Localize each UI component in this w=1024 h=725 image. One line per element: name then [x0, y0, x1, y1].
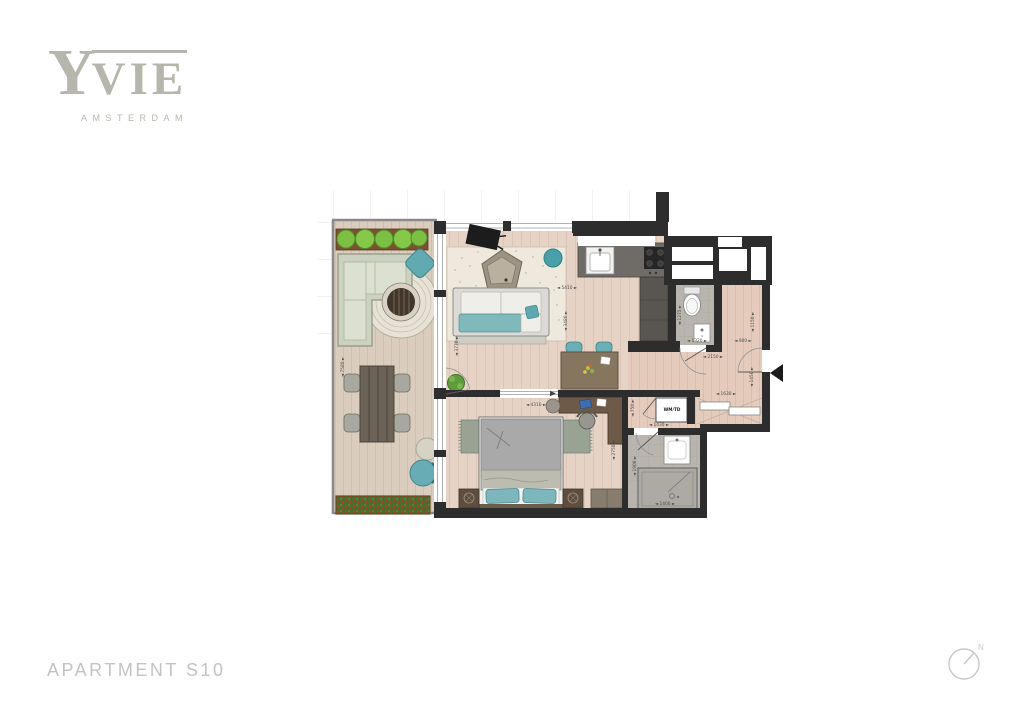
sliding-door-bedroom	[500, 389, 558, 398]
outdoor-chair	[344, 414, 360, 432]
coffee-table	[382, 283, 420, 321]
dimension-label: ◄ 750 ►	[630, 399, 636, 417]
dining-chair-teal	[566, 342, 582, 353]
side-table-teal	[544, 249, 562, 267]
dimension-label: ◄ 3480 ►	[563, 310, 569, 331]
stool	[546, 399, 560, 413]
dimension-label: ◄ 7580 ►	[340, 356, 346, 377]
planter-bushes	[336, 229, 428, 250]
bed-blanket	[481, 470, 561, 490]
dimension-label: ◄ 1275 ►	[677, 304, 683, 325]
headboard	[479, 504, 563, 508]
kitchen-sink	[586, 247, 614, 274]
apartment-title: APARTMENT S10	[47, 660, 226, 681]
dimension-label: ◄ 2750 ►	[611, 439, 617, 460]
dimension-label: ◄ 3770 ►	[454, 335, 460, 356]
brand-logo: YVIE AMSTERDAM	[48, 40, 188, 123]
brand-logo-city: AMSTERDAM	[81, 113, 188, 123]
logo-letters-vie: VIE	[92, 50, 188, 103]
dimension-label: ◄ 1900 ►	[632, 455, 638, 476]
floorplan-svg: WM/TD	[315, 188, 790, 525]
nightstand-left	[459, 489, 479, 508]
outdoor-chair	[344, 374, 360, 392]
bed-pillow-teal	[523, 488, 556, 503]
bathroom-sink	[664, 436, 690, 464]
dimension-label: ◄ 1400 ►	[655, 501, 676, 507]
compass: N	[940, 636, 992, 688]
bed-duvet	[481, 419, 561, 477]
paper	[597, 399, 607, 407]
compass-north-label: N	[978, 643, 984, 652]
dimension-label: ◄ 1430 ►	[649, 422, 670, 428]
dining-chair-teal	[596, 342, 612, 353]
sofa-seat-teal	[459, 314, 521, 332]
laptop	[579, 399, 591, 408]
terrace	[332, 220, 438, 514]
kitchen-tall-cabinet	[640, 277, 668, 341]
bed	[479, 417, 563, 508]
dimension-label: ◄ 2150 ►	[703, 354, 724, 360]
dimension-label: ◄ 1630 ►	[716, 391, 737, 397]
washer-dryer-label: WM/TD	[664, 407, 681, 412]
outdoor-chair	[394, 374, 410, 392]
nightstand-right	[563, 489, 583, 508]
outdoor-chair	[394, 414, 410, 432]
compass-needle-icon	[964, 653, 974, 664]
logo-letter-y: Y	[48, 36, 96, 109]
dimension-label: ◄ 900 ►	[734, 338, 752, 344]
plant	[448, 375, 465, 392]
dimension-label: ◄ 1450 ►	[749, 366, 755, 387]
dimension-label: ◄ 5410 ►	[557, 285, 578, 291]
entrance-arrow	[770, 364, 783, 382]
sofa-pillow-teal	[525, 305, 539, 319]
sofa	[453, 288, 549, 344]
outdoor-lounge-chair	[410, 460, 437, 486]
flower-planter	[336, 496, 430, 514]
dimension-label: ◄ 4310 ►	[526, 402, 547, 408]
brand-logo-wordmark: YVIE	[48, 40, 188, 106]
dimension-label: ◄ 1150 ►	[750, 311, 756, 332]
bed-pillow-teal	[486, 488, 519, 503]
toilet-tank	[684, 287, 700, 294]
dimension-label: ◄ 1320 ►	[687, 338, 708, 344]
